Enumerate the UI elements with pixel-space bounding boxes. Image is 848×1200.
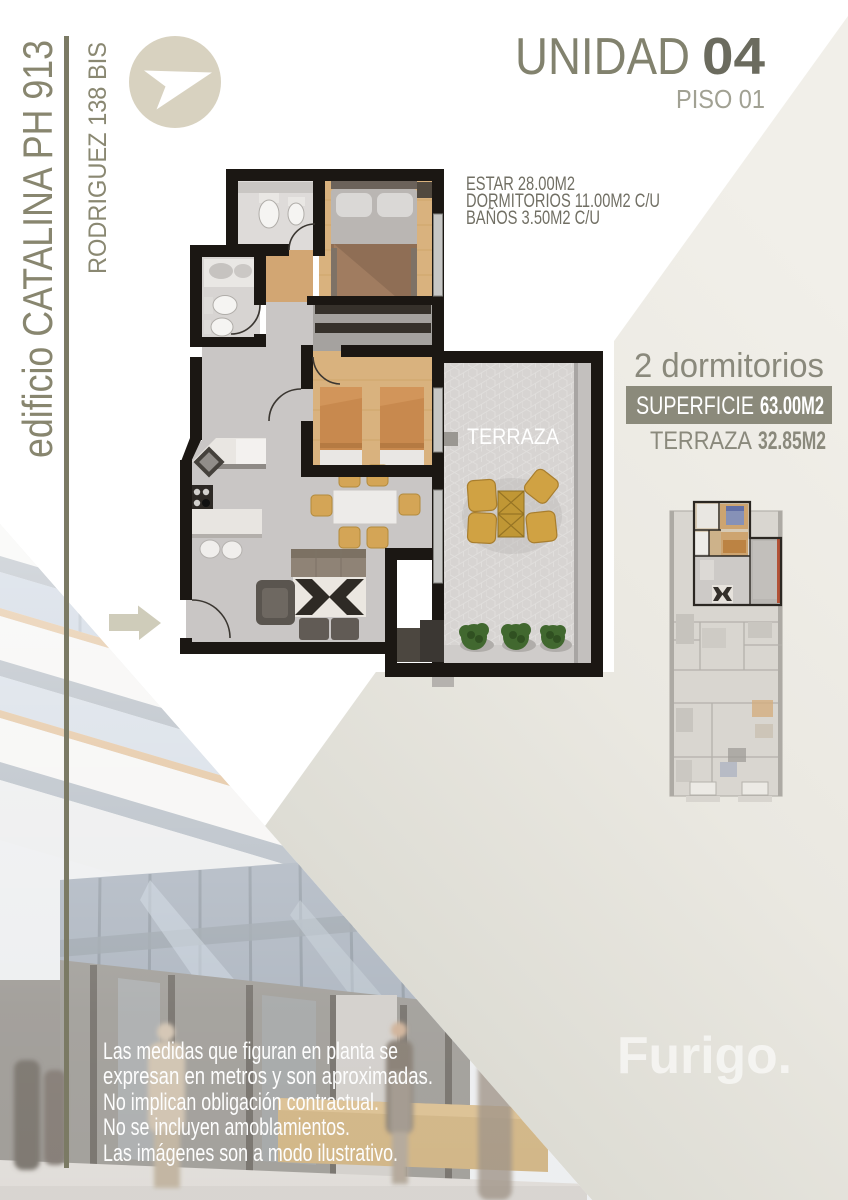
- svg-text:PISO 01: PISO 01: [676, 84, 765, 114]
- svg-text:32.85M2: 32.85M2: [758, 427, 826, 455]
- svg-text:expresan en metros y son aprox: expresan en metros y son aproximadas.: [103, 1063, 433, 1090]
- svg-text:RODRIGUEZ 138 BIS: RODRIGUEZ 138 BIS: [84, 42, 112, 274]
- svg-text:Las imágenes son a modo ilustr: Las imágenes son a modo ilustrativo.: [103, 1140, 398, 1167]
- svg-text:Furigo.: Furigo.: [617, 1027, 792, 1085]
- svg-text:No implican obligación contrac: No implican obligación contractual.: [103, 1089, 379, 1116]
- svg-text:UNIDAD: UNIDAD: [515, 28, 690, 86]
- svg-text:04: 04: [702, 28, 765, 86]
- svg-text:TERRAZA: TERRAZA: [650, 427, 752, 455]
- svg-text:SUPERFICIE: SUPERFICIE: [636, 392, 754, 420]
- svg-text:63.00M2: 63.00M2: [760, 392, 824, 420]
- svg-text:TERRAZA: TERRAZA: [467, 424, 559, 449]
- svg-text:Las medidas que figuran en pla: Las medidas que figuran en planta se: [103, 1038, 398, 1065]
- svg-text:No se incluyen amoblamientos.: No se incluyen amoblamientos.: [103, 1114, 350, 1141]
- svg-text:BAÑOS 3.50M2 C/U: BAÑOS 3.50M2 C/U: [466, 207, 600, 229]
- svg-text:2 dormitorios: 2 dormitorios: [634, 347, 824, 385]
- svg-text:edificio CATALINA PH 913: edificio CATALINA PH 913: [14, 40, 61, 458]
